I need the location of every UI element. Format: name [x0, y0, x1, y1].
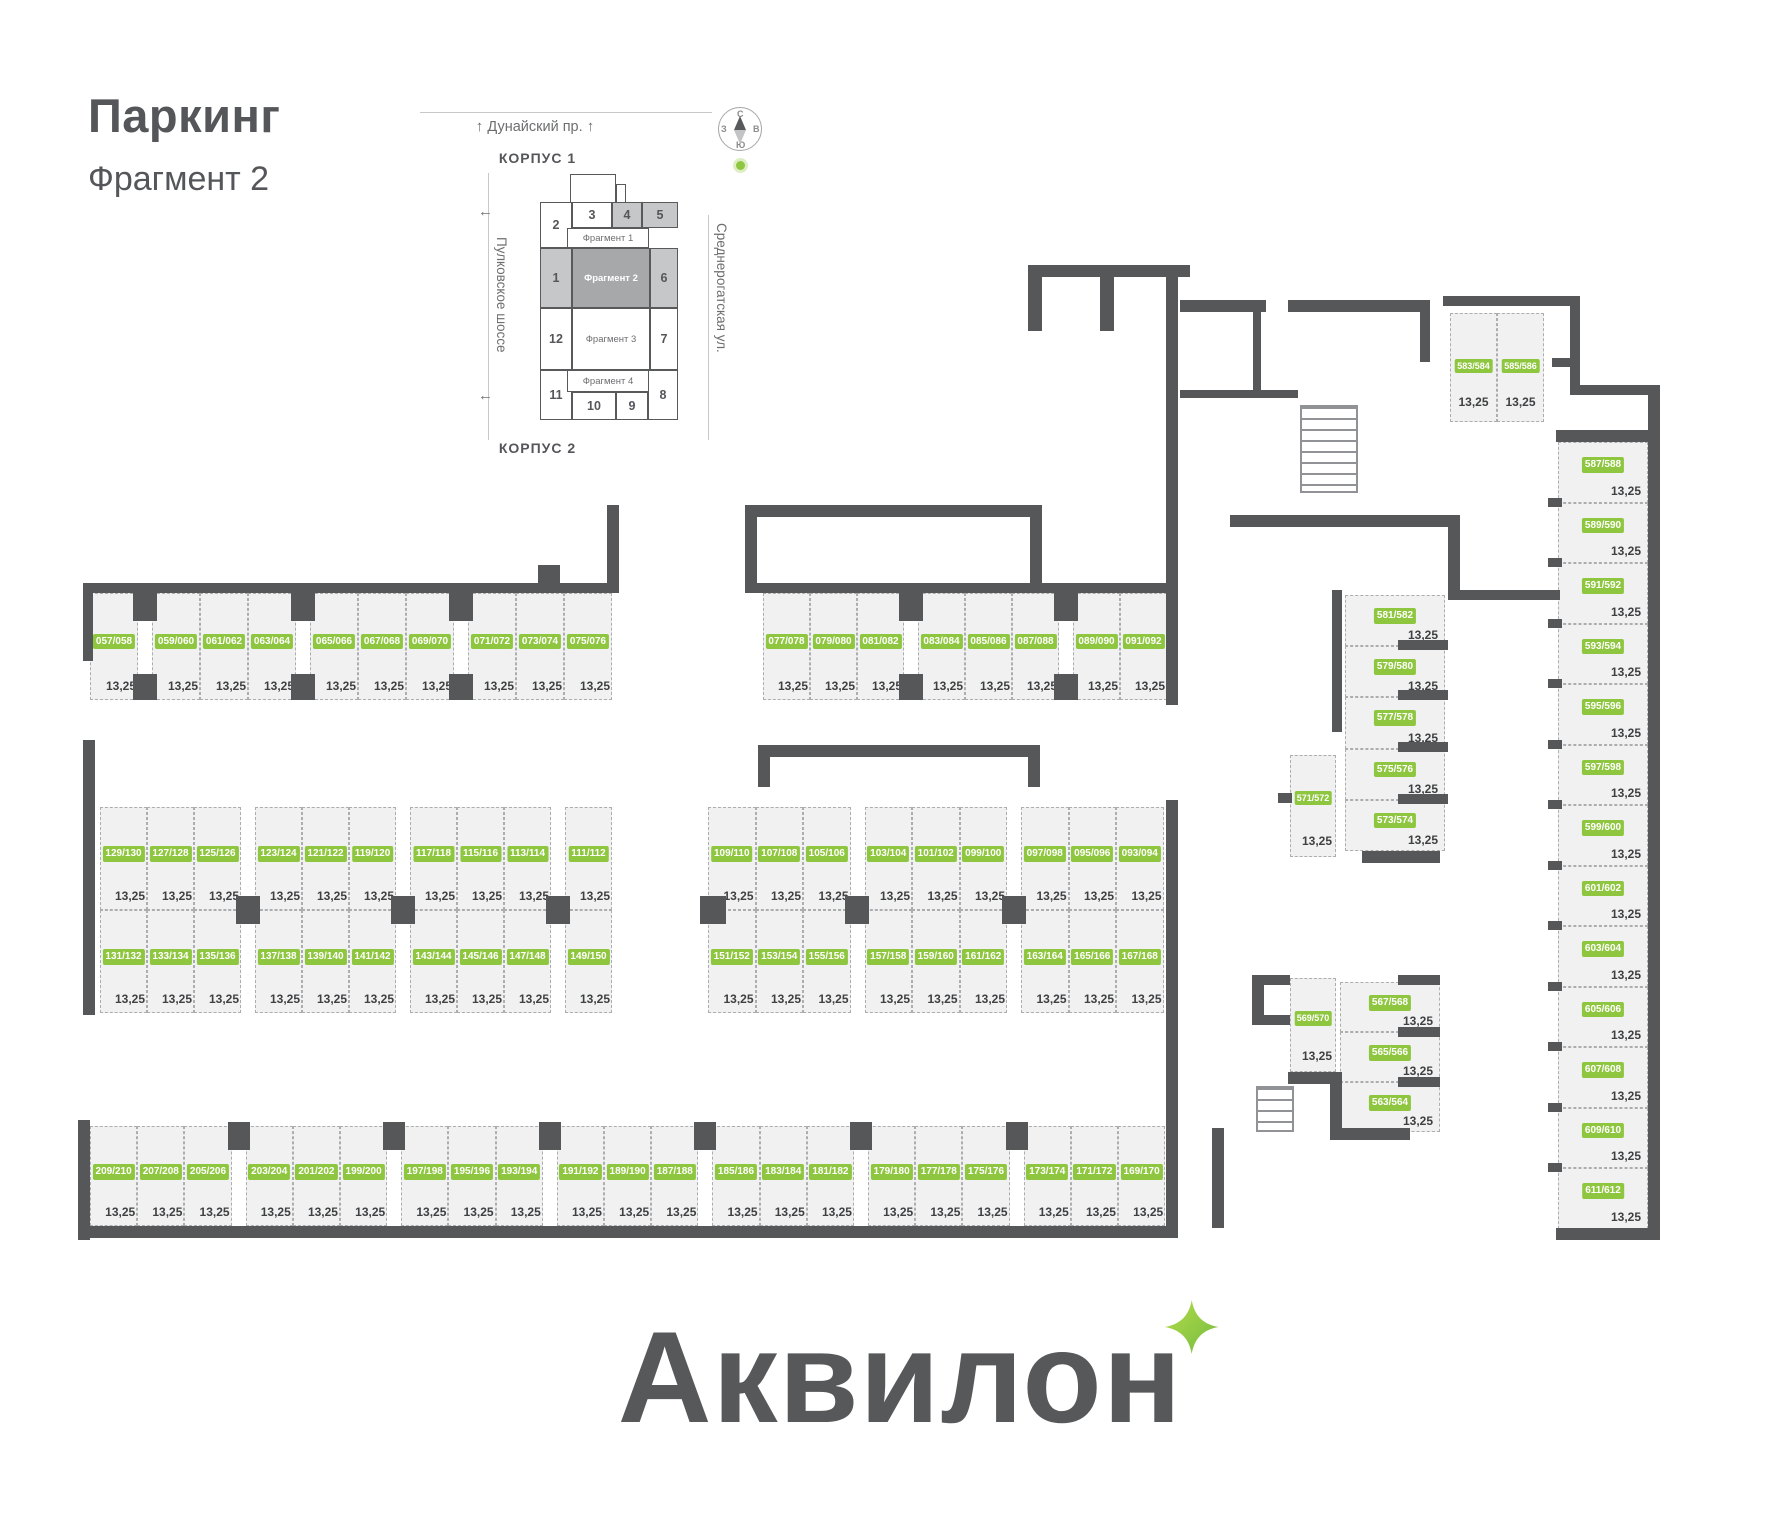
parking-space-079-080[interactable]: 079/08013,25 — [810, 593, 857, 700]
parking-space-099-100[interactable]: 099/10013,25 — [960, 807, 1008, 910]
parking-space-599-600[interactable]: 599/60013,25 — [1558, 805, 1648, 866]
wall — [228, 1122, 250, 1150]
space-number: 123/124 — [257, 846, 299, 862]
parking-space-183-184[interactable]: 183/18413,25 — [760, 1126, 807, 1226]
parking-space-151-152[interactable]: 151/15213,25 — [708, 910, 756, 1013]
parking-space-581-582[interactable]: 581/58213,25 — [1345, 595, 1445, 646]
brand-logo: Аквилон — [618, 1312, 1183, 1442]
space-area: 13,25 — [216, 679, 246, 693]
space-number: 187/188 — [654, 1164, 696, 1180]
parking-space-603-604[interactable]: 603/60413,25 — [1558, 926, 1648, 987]
parking-space-093-094[interactable]: 093/09413,25 — [1116, 807, 1164, 910]
wall — [1556, 430, 1658, 442]
space-area: 13,25 — [162, 889, 192, 903]
parking-space-167-168[interactable]: 167/16813,25 — [1116, 910, 1164, 1013]
space-area: 13,25 — [980, 679, 1010, 693]
space-area: 13,25 — [1611, 907, 1641, 921]
wall — [1548, 800, 1562, 809]
space-area: 13,25 — [927, 992, 957, 1006]
space-number: 059/060 — [155, 634, 197, 650]
parking-space-203-204[interactable]: 203/20413,25 — [246, 1126, 293, 1226]
fragment-3-cell[interactable]: Фрагмент 3 — [572, 308, 650, 370]
space-number: 103/104 — [867, 846, 909, 862]
parking-space-187-188[interactable]: 187/18813,25 — [651, 1126, 698, 1226]
space-area: 13,25 — [1084, 992, 1114, 1006]
fragment-1-cell-label: Фрагмент 1 — [583, 233, 634, 244]
space-number: 203/204 — [248, 1164, 290, 1180]
space-number: 125/126 — [196, 846, 238, 862]
wall — [1548, 921, 1562, 930]
wall — [700, 896, 726, 924]
space-area: 13,25 — [1084, 889, 1114, 903]
space-area: 13,25 — [209, 889, 239, 903]
parking-space-115-116[interactable]: 115/11613,25 — [457, 807, 504, 910]
parking-space-103-104[interactable]: 103/10413,25 — [865, 807, 913, 910]
wall — [1332, 590, 1342, 732]
wall — [899, 674, 923, 700]
parking-space-605-606[interactable]: 605/60613,25 — [1558, 987, 1648, 1048]
wall — [83, 740, 95, 1015]
space-area: 13,25 — [1086, 1205, 1116, 1219]
wall — [83, 583, 617, 593]
wall — [449, 593, 473, 621]
space-number: 061/062 — [203, 634, 245, 650]
space-number: 159/160 — [915, 949, 957, 965]
parking-space-131-132[interactable]: 131/13213,25 — [100, 910, 147, 1013]
space-area: 13,25 — [933, 679, 963, 693]
space-number: 185/186 — [715, 1164, 757, 1180]
space-number: 165/166 — [1071, 949, 1113, 965]
wall — [1548, 982, 1562, 991]
parking-space-073-074[interactable]: 073/07413,25 — [516, 593, 564, 700]
parking-space-589-590[interactable]: 589/59013,25 — [1558, 503, 1648, 564]
space-area: 13,25 — [1302, 1049, 1332, 1063]
parking-space-147-148[interactable]: 147/14813,25 — [504, 910, 551, 1013]
wall — [1262, 1015, 1290, 1025]
space-area: 13,25 — [975, 992, 1005, 1006]
parking-space-095-096[interactable]: 095/09613,25 — [1069, 807, 1117, 910]
wall — [1180, 390, 1298, 398]
parking-space-569-570[interactable]: 569/57013,25 — [1290, 978, 1336, 1072]
space-area: 13,25 — [1403, 1014, 1433, 1028]
parking-space-185-186[interactable]: 185/18613,25 — [712, 1126, 759, 1226]
wall — [1570, 385, 1660, 395]
space-area: 13,25 — [778, 679, 808, 693]
space-number: 077/078 — [765, 634, 807, 650]
wall — [1288, 300, 1430, 312]
space-area: 13,25 — [472, 889, 502, 903]
parking-space-179-180[interactable]: 179/18013,25 — [868, 1126, 915, 1226]
space-area: 13,25 — [1611, 605, 1641, 619]
wall — [291, 593, 315, 621]
parking-space-609-610[interactable]: 609/61013,25 — [1558, 1108, 1648, 1169]
space-area: 13,25 — [1458, 395, 1488, 409]
space-number: 107/108 — [758, 846, 800, 862]
parking-space-601-602[interactable]: 601/60213,25 — [1558, 866, 1648, 927]
space-area: 13,25 — [115, 889, 145, 903]
space-number: 119/120 — [352, 846, 394, 862]
parking-space-121-122[interactable]: 121/12213,25 — [302, 807, 349, 910]
parking-space-563-564[interactable]: 563/56413,25 — [1340, 1082, 1440, 1132]
wall — [1230, 515, 1458, 527]
wall — [1030, 505, 1042, 593]
parking-space-075-076[interactable]: 075/07613,25 — [564, 593, 612, 700]
parking-space-593-594[interactable]: 593/59413,25 — [1558, 624, 1648, 685]
parking-space-189-190[interactable]: 189/19013,25 — [604, 1126, 651, 1226]
fragment-2-cell[interactable]: Фрагмент 2 — [572, 248, 650, 308]
parking-space-067-068[interactable]: 067/06813,25 — [358, 593, 406, 700]
space-area: 13,25 — [264, 679, 294, 693]
space-area: 13,25 — [822, 1205, 852, 1219]
parking-space-119-120[interactable]: 119/12013,25 — [349, 807, 396, 910]
space-number: 573/574 — [1374, 813, 1416, 829]
space-number: 091/092 — [1122, 634, 1164, 650]
space-number: 147/148 — [506, 949, 548, 965]
space-area: 13,25 — [880, 889, 910, 903]
parking-space-567-568[interactable]: 567/56813,25 — [1340, 982, 1440, 1032]
parking-space-169-170[interactable]: 169/17013,25 — [1118, 1126, 1165, 1226]
parking-space-209-210[interactable]: 209/21013,25 — [90, 1126, 137, 1226]
space-number: 175/176 — [965, 1164, 1007, 1180]
space-area: 13,25 — [580, 992, 610, 1006]
space-area: 13,25 — [364, 889, 394, 903]
parking-space-059-060[interactable]: 059/06013,25 — [152, 593, 200, 700]
space-number: 095/096 — [1071, 846, 1113, 862]
space-number: 581/582 — [1374, 608, 1416, 624]
parking-space-141-142[interactable]: 141/14213,25 — [349, 910, 396, 1013]
space-number: 579/580 — [1374, 659, 1416, 675]
parking-space-575-576[interactable]: 575/57613,25 — [1345, 749, 1445, 800]
wall — [1548, 498, 1562, 507]
parking-space-149-150[interactable]: 149/15013,25 — [565, 910, 612, 1013]
parking-space-081-082[interactable]: 081/08213,25 — [857, 593, 904, 700]
parking-space-191-192[interactable]: 191/19213,25 — [557, 1126, 604, 1226]
space-area: 13,25 — [484, 679, 514, 693]
space-number: 195/196 — [451, 1164, 493, 1180]
space-number: 609/610 — [1582, 1123, 1624, 1139]
space-area: 13,25 — [519, 992, 549, 1006]
wall — [1262, 975, 1290, 985]
space-area: 13,25 — [1611, 544, 1641, 558]
parking-space-577-578[interactable]: 577/57813,25 — [1345, 697, 1445, 748]
fragment-1-cell[interactable]: Фрагмент 1 — [567, 228, 649, 248]
parking-space-197-198[interactable]: 197/19813,25 — [401, 1126, 448, 1226]
parking-space-175-176[interactable]: 175/17613,25 — [962, 1126, 1009, 1226]
parking-space-065-066[interactable]: 065/06613,25 — [310, 593, 358, 700]
space-area: 13,25 — [416, 1205, 446, 1219]
space-number: 097/098 — [1024, 846, 1066, 862]
space-number: 569/570 — [1295, 1011, 1332, 1025]
space-area: 13,25 — [152, 1205, 182, 1219]
parking-space-117-118[interactable]: 117/11813,25 — [410, 807, 457, 910]
parking-space-173-174[interactable]: 173/17413,25 — [1024, 1126, 1071, 1226]
stairs — [1300, 405, 1358, 493]
space-number: 087/088 — [1014, 634, 1056, 650]
fragment-2-cell-label: Фрагмент 2 — [584, 273, 638, 284]
space-area: 13,25 — [1302, 834, 1332, 848]
wall — [391, 896, 415, 924]
space-number: 205/206 — [187, 1164, 229, 1180]
wall — [1448, 590, 1560, 600]
space-area: 13,25 — [326, 679, 356, 693]
parking-space-111-112[interactable]: 111/11213,25 — [565, 807, 612, 910]
parking-space-583-584[interactable]: 583/58413,25 — [1450, 313, 1497, 422]
space-number: 201/202 — [295, 1164, 337, 1180]
parking-space-161-162[interactable]: 161/16213,25 — [960, 910, 1008, 1013]
space-number: 207/208 — [140, 1164, 182, 1180]
space-area: 13,25 — [532, 679, 562, 693]
parking-space-565-566[interactable]: 565/56613,25 — [1340, 1032, 1440, 1082]
space-area: 13,25 — [872, 679, 902, 693]
space-number: 179/180 — [871, 1164, 913, 1180]
wall — [1054, 674, 1078, 700]
space-number: 597/598 — [1582, 760, 1624, 776]
space-area: 13,25 — [519, 889, 549, 903]
wall — [383, 1122, 405, 1150]
parking-space-585-586[interactable]: 585/58613,25 — [1497, 313, 1544, 422]
wall — [1570, 296, 1580, 391]
space-area: 13,25 — [270, 992, 300, 1006]
space-number: 171/172 — [1073, 1164, 1115, 1180]
parking-space-071-072[interactable]: 071/07213,25 — [468, 593, 516, 700]
parking-space-595-596[interactable]: 595/59613,25 — [1558, 684, 1648, 745]
parking-space-107-108[interactable]: 107/10813,25 — [756, 807, 804, 910]
space-area: 13,25 — [1611, 484, 1641, 498]
space-area: 13,25 — [1611, 786, 1641, 800]
parking-space-155-156[interactable]: 155/15613,25 — [803, 910, 851, 1013]
space-number: 151/152 — [711, 949, 753, 965]
space-area: 13,25 — [200, 1205, 230, 1219]
wall — [1548, 861, 1562, 870]
parking-space-195-196[interactable]: 195/19613,25 — [448, 1126, 495, 1226]
space-area: 13,25 — [1611, 1210, 1641, 1224]
space-number: 567/568 — [1369, 995, 1411, 1011]
parking-space-571-572[interactable]: 571/57213,25 — [1290, 755, 1336, 857]
parking-space-085-086[interactable]: 085/08613,25 — [965, 593, 1012, 700]
parking-space-163-164[interactable]: 163/16413,25 — [1021, 910, 1069, 1013]
space-area: 13,25 — [1611, 665, 1641, 679]
wall — [1362, 851, 1440, 863]
parking-space-133-134[interactable]: 133/13413,25 — [147, 910, 194, 1013]
parking-space-109-110[interactable]: 109/11013,25 — [708, 807, 756, 910]
space-number: 563/564 — [1369, 1095, 1411, 1111]
wall — [1006, 1122, 1028, 1150]
parking-space-597-598[interactable]: 597/59813,25 — [1558, 745, 1648, 806]
space-number: 113/114 — [507, 846, 548, 862]
wall — [745, 505, 757, 593]
wall — [899, 593, 923, 621]
parking-space-139-140[interactable]: 139/14013,25 — [302, 910, 349, 1013]
parking-space-123-124[interactable]: 123/12413,25 — [255, 807, 302, 910]
space-area: 13,25 — [975, 889, 1005, 903]
parking-space-201-202[interactable]: 201/20213,25 — [293, 1126, 340, 1226]
space-number: 565/566 — [1369, 1045, 1411, 1061]
space-area: 13,25 — [619, 1205, 649, 1219]
space-number: 163/164 — [1024, 949, 1066, 965]
space-area: 13,25 — [666, 1205, 696, 1219]
parking-space-083-084[interactable]: 083/08413,25 — [918, 593, 965, 700]
wall — [850, 1122, 872, 1150]
space-area: 13,25 — [511, 1205, 541, 1219]
wall — [1548, 1042, 1562, 1051]
parking-space-137-138[interactable]: 137/13813,25 — [255, 910, 302, 1013]
parking-space-153-154[interactable]: 153/15413,25 — [756, 910, 804, 1013]
space-number: 085/086 — [967, 634, 1009, 650]
space-area: 13,25 — [1133, 1205, 1163, 1219]
wall — [133, 593, 157, 621]
parking-space-101-102[interactable]: 101/10213,25 — [912, 807, 960, 910]
space-number: 073/074 — [519, 634, 561, 650]
wall — [1253, 312, 1261, 396]
space-number: 177/178 — [918, 1164, 960, 1180]
space-number: 149/150 — [567, 949, 609, 965]
wall — [538, 565, 560, 585]
fragment-4-cell[interactable]: Фрагмент 4 — [567, 370, 649, 392]
space-number: 139/140 — [304, 949, 346, 965]
parking-space-205-206[interactable]: 205/20613,25 — [184, 1126, 231, 1226]
wall — [1398, 1077, 1440, 1087]
parking-space-105-106[interactable]: 105/10613,25 — [803, 807, 851, 910]
parking-space-199-200[interactable]: 199/20013,25 — [340, 1126, 387, 1226]
stairs — [1256, 1086, 1294, 1132]
wall — [1002, 896, 1026, 924]
space-number: 595/596 — [1582, 699, 1624, 715]
space-number: 145/146 — [459, 949, 501, 965]
parking-space-091-092[interactable]: 091/09213,25 — [1120, 593, 1167, 700]
space-number: 131/132 — [102, 949, 144, 965]
space-number: 133/134 — [149, 949, 191, 965]
wall — [1548, 558, 1562, 567]
space-area: 13,25 — [168, 679, 198, 693]
space-number: 571/572 — [1295, 791, 1332, 805]
space-area: 13,25 — [883, 1205, 913, 1219]
space-number: 607/608 — [1582, 1062, 1624, 1078]
wall — [1398, 742, 1448, 752]
wall — [1166, 800, 1178, 1015]
parking-space-165-166[interactable]: 165/16613,25 — [1069, 910, 1117, 1013]
space-number: 585/586 — [1501, 359, 1540, 373]
space-number: 593/594 — [1582, 639, 1624, 655]
space-area: 13,25 — [105, 1205, 135, 1219]
wall — [1548, 619, 1562, 628]
space-area: 13,25 — [771, 992, 801, 1006]
space-number: 063/064 — [251, 634, 293, 650]
wall — [1398, 640, 1448, 650]
parking-space-127-128[interactable]: 127/12813,25 — [147, 807, 194, 910]
space-area: 13,25 — [1505, 395, 1535, 409]
wall — [133, 674, 157, 700]
space-number: 105/106 — [806, 846, 848, 862]
space-area: 13,25 — [1611, 1149, 1641, 1163]
space-area: 13,25 — [209, 992, 239, 1006]
parking-space-591-592[interactable]: 591/59213,25 — [1558, 563, 1648, 624]
parking-space-077-078[interactable]: 077/07813,25 — [763, 593, 810, 700]
parking-space-087-088[interactable]: 087/08813,25 — [1012, 593, 1059, 700]
space-area: 13,25 — [1131, 889, 1161, 903]
parking-space-113-114[interactable]: 113/11413,25 — [504, 807, 551, 910]
parking-space-125-126[interactable]: 125/12613,25 — [194, 807, 241, 910]
parking-space-181-182[interactable]: 181/18213,25 — [807, 1126, 854, 1226]
parking-space-057-058[interactable]: 057/05813,25 — [90, 593, 138, 700]
space-area: 13,25 — [927, 889, 957, 903]
parking-space-129-130[interactable]: 129/13013,25 — [100, 807, 147, 910]
wall — [78, 1226, 1178, 1238]
space-number: 191/192 — [559, 1164, 601, 1180]
wall — [1028, 745, 1040, 787]
wall — [1548, 1163, 1562, 1172]
space-area: 13,25 — [1027, 679, 1057, 693]
parking-space-097-098[interactable]: 097/09813,25 — [1021, 807, 1069, 910]
wall — [1054, 593, 1078, 621]
parking-space-611-612[interactable]: 611/61213,25 — [1558, 1168, 1648, 1229]
wall — [694, 1122, 716, 1150]
parking-space-159-160[interactable]: 159/16013,25 — [912, 910, 960, 1013]
parking-space-587-588[interactable]: 587/58813,25 — [1558, 442, 1648, 503]
space-area: 13,25 — [1611, 847, 1641, 861]
parking-space-145-146[interactable]: 145/14613,25 — [457, 910, 504, 1013]
space-number: 591/592 — [1582, 578, 1624, 594]
space-number: 603/604 — [1582, 941, 1624, 957]
space-area: 13,25 — [317, 992, 347, 1006]
space-area: 13,25 — [1611, 1089, 1641, 1103]
space-number: 089/090 — [1075, 634, 1117, 650]
space-number: 599/600 — [1582, 820, 1624, 836]
parking-space-135-136[interactable]: 135/13613,25 — [194, 910, 241, 1013]
space-area: 13,25 — [723, 889, 753, 903]
parking-space-573-574[interactable]: 573/57413,25 — [1345, 800, 1445, 851]
space-number: 083/084 — [920, 634, 962, 650]
wall — [1552, 358, 1580, 367]
space-number: 601/602 — [1582, 881, 1624, 897]
space-area: 13,25 — [1611, 968, 1641, 982]
space-number: 069/070 — [409, 634, 451, 650]
space-area: 13,25 — [880, 992, 910, 1006]
space-number: 209/210 — [93, 1164, 135, 1180]
wall — [1448, 515, 1460, 599]
parking-space-157-158[interactable]: 157/15813,25 — [865, 910, 913, 1013]
wall — [1166, 583, 1178, 705]
space-area: 13,25 — [162, 992, 192, 1006]
parking-space-061-062[interactable]: 061/06213,25 — [200, 593, 248, 700]
space-area: 13,25 — [1408, 833, 1438, 847]
space-number: 071/072 — [471, 634, 513, 650]
parking-space-089-090[interactable]: 089/09013,25 — [1073, 593, 1120, 700]
parking-space-607-608[interactable]: 607/60813,25 — [1558, 1047, 1648, 1108]
space-number: 111/112 — [568, 846, 609, 862]
wall — [1278, 793, 1292, 803]
parking-space-171-172[interactable]: 171/17213,25 — [1071, 1126, 1118, 1226]
parking-space-193-194[interactable]: 193/19413,25 — [496, 1126, 543, 1226]
space-number: 143/144 — [412, 949, 454, 965]
parking-space-143-144[interactable]: 143/14413,25 — [410, 910, 457, 1013]
space-number: 155/156 — [806, 949, 848, 965]
parking-space-063-064[interactable]: 063/06413,25 — [248, 593, 296, 700]
space-number: 117/118 — [413, 846, 454, 862]
space-area: 13,25 — [771, 889, 801, 903]
wall — [546, 896, 570, 924]
space-area: 13,25 — [270, 889, 300, 903]
space-area: 13,25 — [261, 1205, 291, 1219]
space-number: 081/082 — [859, 634, 901, 650]
parking-space-069-070[interactable]: 069/07013,25 — [406, 593, 454, 700]
parking-space-207-208[interactable]: 207/20813,25 — [137, 1126, 184, 1226]
wall — [607, 505, 619, 593]
space-area: 13,25 — [425, 889, 455, 903]
parking-space-177-178[interactable]: 177/17813,25 — [915, 1126, 962, 1226]
wall — [745, 583, 1178, 593]
wall — [1548, 679, 1562, 688]
wall — [291, 674, 315, 700]
